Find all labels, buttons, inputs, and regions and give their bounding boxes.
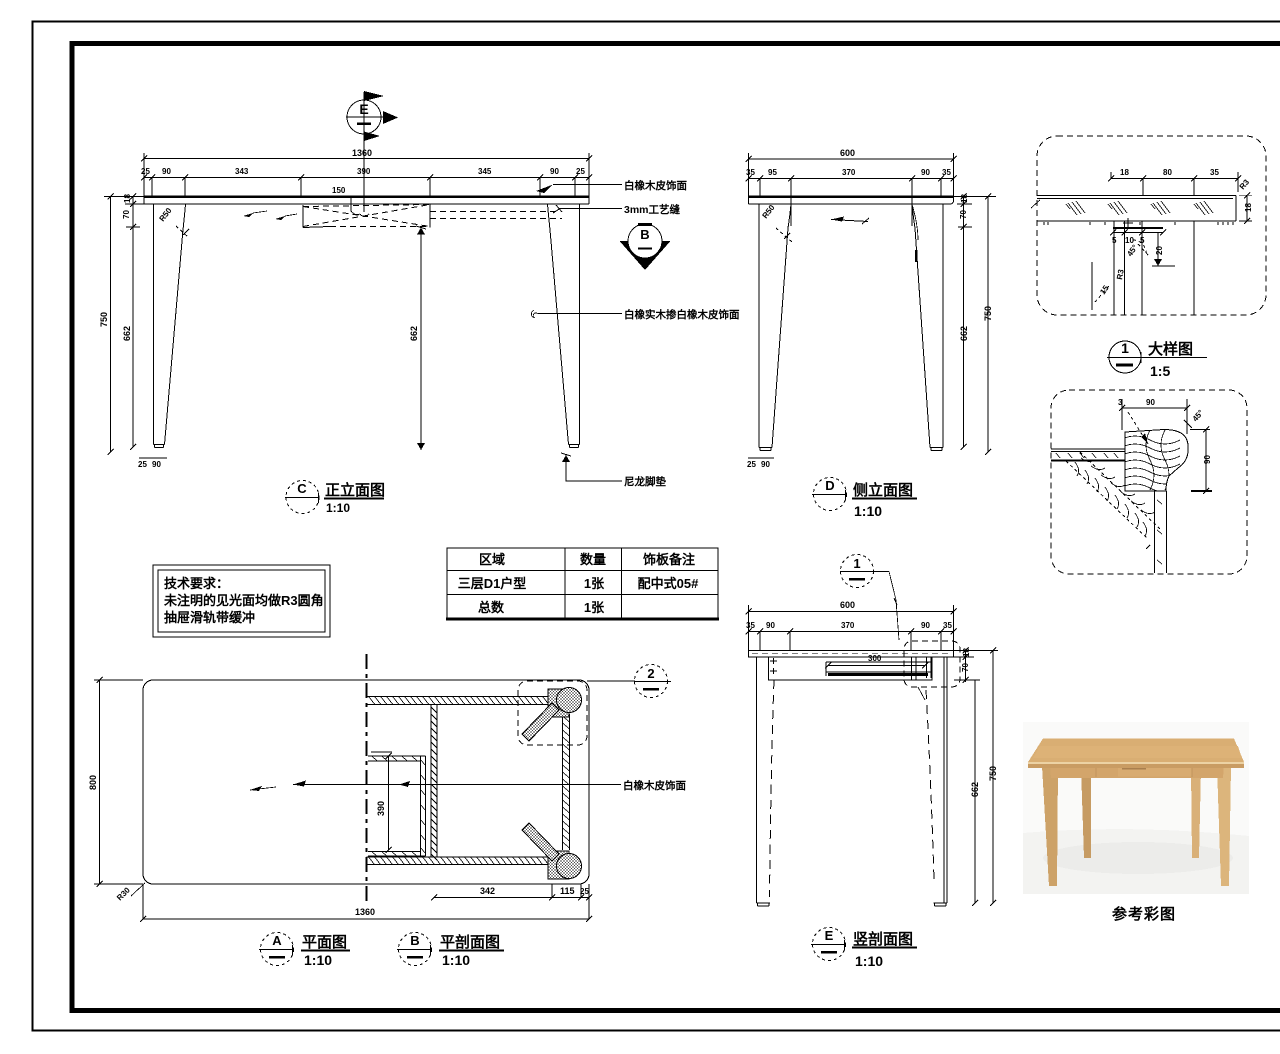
svg-text:150: 150 <box>332 186 346 195</box>
svg-text:20: 20 <box>1155 246 1164 255</box>
svg-text:正立面图: 正立面图 <box>325 481 385 499</box>
svg-text:600: 600 <box>840 600 855 610</box>
svg-text:1张: 1张 <box>584 600 605 615</box>
svg-text:D: D <box>825 478 834 493</box>
svg-text:370: 370 <box>841 621 855 630</box>
svg-text:竖剖面图: 竖剖面图 <box>853 930 913 948</box>
svg-text:技术要求：: 技术要求： <box>164 576 229 591</box>
svg-text:参考彩图: 参考彩图 <box>1112 905 1176 923</box>
svg-text:90: 90 <box>162 167 171 176</box>
svg-text:25: 25 <box>138 460 147 469</box>
svg-text:90: 90 <box>152 460 161 469</box>
svg-text:E: E <box>359 101 368 117</box>
svg-text:342: 342 <box>480 886 495 896</box>
svg-text:600: 600 <box>840 148 855 158</box>
svg-text:90: 90 <box>1203 455 1212 464</box>
svg-text:18: 18 <box>960 194 969 203</box>
svg-text:90: 90 <box>550 167 559 176</box>
svg-text:侧立面图: 侧立面图 <box>853 481 913 499</box>
svg-text:750: 750 <box>99 312 109 327</box>
svg-text:1:10: 1:10 <box>442 952 470 968</box>
svg-text:18: 18 <box>1244 203 1253 212</box>
svg-text:1:10: 1:10 <box>855 953 883 969</box>
svg-text:90: 90 <box>766 621 775 630</box>
svg-text:90: 90 <box>921 621 930 630</box>
svg-text:1:10: 1:10 <box>326 501 350 515</box>
svg-text:90: 90 <box>761 460 770 469</box>
svg-text:662: 662 <box>122 326 132 341</box>
svg-text:尼龙脚垫: 尼龙脚垫 <box>624 475 666 488</box>
svg-text:1:10: 1:10 <box>854 503 882 519</box>
svg-text:白橡木皮饰面: 白橡木皮饰面 <box>624 179 687 192</box>
svg-text:370: 370 <box>842 168 856 177</box>
svg-text:95: 95 <box>768 168 777 177</box>
svg-text:1:10: 1:10 <box>304 952 332 968</box>
svg-text:B: B <box>640 227 649 242</box>
svg-text:1: 1 <box>1121 340 1129 356</box>
svg-text:2: 2 <box>647 666 654 681</box>
svg-text:饰板备注: 饰板备注 <box>643 552 695 567</box>
svg-text:白橡实木掺白橡木皮饰面: 白橡实木掺白橡木皮饰面 <box>624 308 740 321</box>
svg-text:343: 343 <box>235 167 249 176</box>
svg-text:90: 90 <box>921 168 930 177</box>
svg-text:115: 115 <box>560 886 575 896</box>
svg-text:90: 90 <box>1146 398 1155 407</box>
svg-text:345: 345 <box>478 167 492 176</box>
svg-text:35: 35 <box>943 621 952 630</box>
svg-text:配中式05#: 配中式05# <box>638 576 699 591</box>
svg-text:1360: 1360 <box>355 907 375 917</box>
svg-text:总数: 总数 <box>478 600 505 615</box>
svg-text:70: 70 <box>122 210 131 219</box>
svg-text:1360: 1360 <box>352 148 372 158</box>
svg-text:3mm工艺缝: 3mm工艺缝 <box>624 203 681 216</box>
svg-text:70: 70 <box>961 663 970 672</box>
svg-text:80: 80 <box>1163 168 1172 177</box>
svg-text:未注明的见光面均做R3圆角: 未注明的见光面均做R3圆角 <box>163 593 324 608</box>
svg-text:平剖面图: 平剖面图 <box>440 933 500 951</box>
svg-text:750: 750 <box>988 766 998 781</box>
svg-text:800: 800 <box>88 775 98 790</box>
svg-text:白橡木皮饰面: 白橡木皮饰面 <box>623 779 686 792</box>
svg-text:70: 70 <box>959 210 968 219</box>
svg-text:1: 1 <box>853 556 860 571</box>
svg-text:大样图: 大样图 <box>1148 340 1193 358</box>
svg-text:抽屉滑轨带缓冲: 抽屉滑轨带缓冲 <box>164 610 255 625</box>
svg-text:平面图: 平面图 <box>302 934 347 951</box>
svg-text:25: 25 <box>747 460 756 469</box>
svg-text:662: 662 <box>409 326 419 341</box>
svg-text:C: C <box>297 481 307 496</box>
svg-text:1张: 1张 <box>584 576 605 591</box>
svg-text:5: 5 <box>1140 236 1145 245</box>
svg-text:A: A <box>272 933 282 948</box>
svg-text:1:5: 1:5 <box>1150 363 1170 379</box>
svg-text:750: 750 <box>983 306 993 321</box>
svg-text:区域: 区域 <box>479 552 505 567</box>
svg-text:300: 300 <box>868 654 882 663</box>
svg-text:18: 18 <box>962 648 971 657</box>
svg-text:662: 662 <box>970 782 980 797</box>
svg-text:35: 35 <box>1210 168 1219 177</box>
svg-text:18: 18 <box>1120 168 1129 177</box>
svg-text:三层D1户型: 三层D1户型 <box>458 576 527 591</box>
svg-text:390: 390 <box>376 801 386 816</box>
svg-text:662: 662 <box>959 326 969 341</box>
svg-text:E: E <box>825 928 834 943</box>
svg-text:25: 25 <box>141 167 150 176</box>
svg-text:B: B <box>410 933 419 948</box>
svg-text:数量: 数量 <box>580 552 606 567</box>
svg-text:5: 5 <box>1112 236 1117 245</box>
svg-text:18: 18 <box>123 194 132 203</box>
